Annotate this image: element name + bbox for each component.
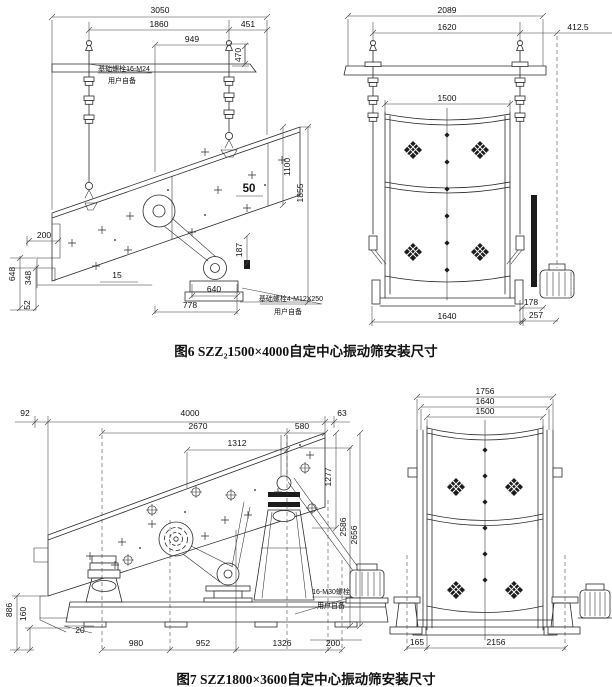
dim-label: 1500 — [438, 93, 457, 103]
dim-label: 200 — [326, 638, 340, 648]
dim-label: 1312 — [228, 438, 247, 448]
dim-label: 187 — [234, 243, 244, 257]
technical-drawing-page: 3050 1860 451 949 470 50 187 1100 1855 2… — [0, 0, 612, 687]
dim-label: 886 — [4, 603, 14, 617]
figure6-side-dimtexts: 3050 1860 451 949 470 50 187 1100 1855 2… — [7, 5, 323, 316]
anchor-bolt-note: 基础螺栓4-M12X250 — [259, 294, 323, 303]
dim-label: 1855 — [295, 183, 305, 202]
dim-label: 580 — [295, 421, 309, 431]
dim-label: 52 — [22, 300, 32, 310]
dim-label: 778 — [183, 300, 197, 310]
dim-label: 2586 — [338, 517, 348, 536]
dim-label: 2656 — [349, 525, 359, 544]
figure7-front-dimtexts: 1756 1640 1500 165 2156 — [410, 386, 506, 647]
figure7-side-dimtexts: 92 4000 63 2670 580 1312 1277 2586 2656 … — [4, 408, 359, 648]
dim-label: 50 — [243, 183, 256, 195]
dim-label: 348 — [23, 271, 33, 285]
figure7-side-view: 92 4000 63 2670 580 1312 1277 2586 2656 … — [4, 408, 388, 653]
dim-label: 1640 — [438, 311, 457, 321]
dim-label: 1756 — [476, 386, 495, 396]
anchor-bolt-note: 16-M30螺栓 — [312, 587, 350, 596]
dim-label: 451 — [241, 19, 255, 29]
figure6-side-marks — [68, 40, 286, 270]
anchor-bolt-note: 基础螺栓16-M24 — [98, 64, 150, 73]
figure6-side-structure — [37, 50, 300, 301]
dim-label: 648 — [7, 267, 17, 281]
dim-label: 165 — [410, 637, 424, 647]
dim-label: 980 — [129, 638, 143, 648]
dim-label: 949 — [185, 34, 199, 44]
dim-label: 1620 — [438, 22, 457, 32]
figure7-front-view: 1756 1640 1500 165 2156 — [390, 386, 612, 652]
dim-label: 2089 — [438, 5, 457, 15]
dim-label: 178 — [524, 297, 538, 307]
dim-label: 1500 — [476, 406, 495, 416]
dim-label: 470 — [233, 48, 243, 62]
dim-label: 640 — [207, 284, 221, 294]
dim-label: 1100 — [282, 158, 292, 177]
user-supply-note: 用户自备 — [274, 307, 302, 316]
dim-label: 63 — [337, 408, 347, 418]
figure6-front-structure — [344, 50, 574, 306]
figure6-side-dimlines — [10, 14, 322, 315]
dim-label: 1277 — [323, 467, 333, 486]
user-supply-note: 用户自备 — [108, 76, 136, 85]
dim-label: 1326 — [273, 638, 292, 648]
user-supply-note: 用户自备 — [317, 601, 345, 610]
dim-label: 15 — [112, 270, 122, 280]
dim-label: 257 — [529, 310, 543, 320]
dim-label: 160 — [18, 607, 28, 621]
dim-label: 200 — [37, 230, 51, 240]
dim-label: 952 — [196, 638, 210, 648]
dim-label: 1640 — [476, 396, 495, 406]
dim-label: 3050 — [151, 5, 170, 15]
dim-label: 92 — [20, 408, 30, 418]
figure6-front-view: 2089 1620 412.5 1500 1640 178 257 — [344, 5, 612, 326]
dim-label: 2156 — [487, 637, 506, 647]
dim-label: 2670 — [189, 421, 208, 431]
dim-label: 20 — [75, 625, 85, 635]
dim-label: 412.5 — [567, 22, 589, 32]
dim-label: 1860 — [150, 19, 169, 29]
figure6-caption: 图6 SZZ₂1500×4000自定中心振动筛安装尺寸 — [0, 340, 612, 360]
figure6-side-view: 3050 1860 451 949 470 50 187 1100 1855 2… — [7, 5, 323, 316]
dim-label: 4000 — [181, 408, 200, 418]
figure7-front-structure — [390, 420, 612, 640]
figure7-caption: 图7 SZZ1800×3600自定中心振动筛安装尺寸 — [0, 668, 612, 687]
